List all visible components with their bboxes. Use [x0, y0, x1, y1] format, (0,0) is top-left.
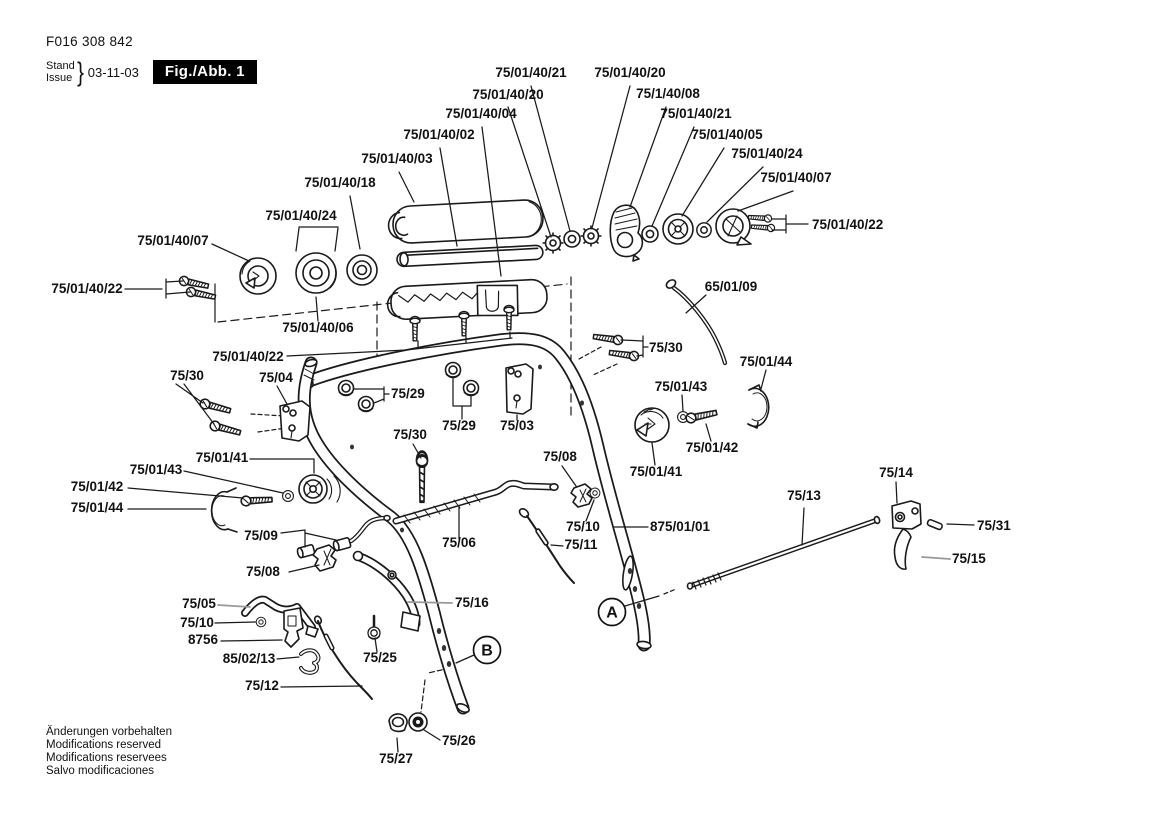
part-label: 75/29	[391, 386, 425, 401]
part-label: 75/10	[566, 519, 600, 534]
part-label: 75/01/44	[71, 500, 124, 515]
part-label: 75/01/42	[686, 440, 739, 455]
exploded-parts-drawing: 75/01/40/2175/01/40/2075/01/40/2075/1/40…	[0, 0, 1168, 825]
part-label: 75/01/40/07	[760, 170, 831, 185]
part-label: 75/01/44	[740, 354, 793, 369]
clutch-right	[635, 408, 669, 442]
part-label: 75/01/40/20	[472, 87, 543, 102]
bracket-75-03	[506, 364, 533, 414]
part-label: 75/05	[182, 596, 216, 611]
part-label: 75/15	[952, 551, 986, 566]
part-label: 75/09	[244, 528, 278, 543]
roller-drum	[296, 253, 336, 293]
part-label: 75/01/43	[130, 462, 183, 477]
part-label: 75/01/40/22	[212, 349, 283, 364]
shield-left	[212, 488, 237, 532]
clip-75-08	[571, 484, 592, 507]
part-labels: 75/01/40/2175/01/40/2075/01/40/2075/1/40…	[51, 65, 1011, 766]
part-label: 75/06	[442, 535, 476, 550]
part-label: 75/01/40/20	[594, 65, 665, 80]
part-label: 75/01/41	[196, 450, 249, 465]
parts-diagram-page: F016 308 842 Stand Issue } 03-11-03 Fig.…	[0, 0, 1168, 825]
part-label: 75/08	[543, 449, 577, 464]
part-label: 75/11	[564, 537, 598, 552]
trigger-handle	[892, 501, 921, 569]
part-label: 75/01/40/21	[495, 65, 567, 80]
end-cap-left	[240, 258, 276, 294]
part-label: 75/01/40/22	[51, 281, 122, 296]
shield-right	[748, 385, 769, 428]
part-label: 75/01/40/02	[403, 127, 474, 142]
part-label: 75/1/40/08	[636, 86, 700, 101]
pulley-left	[299, 475, 340, 503]
view-marker-letter: A	[606, 605, 618, 622]
part-label: 75/26	[442, 733, 476, 748]
part-label: 75/08	[246, 564, 280, 579]
part-label: 75/13	[787, 488, 821, 503]
bracket-75-04	[280, 401, 310, 441]
part-label: 75/03	[500, 418, 534, 433]
part-label: 75/29	[442, 418, 476, 433]
part-label: 75/27	[379, 751, 413, 766]
part-label: 75/01/40/18	[304, 175, 376, 190]
part-label: 75/01/42	[71, 479, 124, 494]
part-label: 75/12	[245, 678, 279, 693]
construction-lines	[215, 277, 617, 712]
view-marker-A: A	[599, 599, 626, 626]
part-label: 75/01/41	[630, 464, 683, 479]
part-label: 75/30	[170, 368, 204, 383]
part-label: 8756	[188, 632, 219, 647]
roller-blade-bar	[397, 245, 544, 267]
ratchet-pawl	[610, 205, 642, 261]
end-cap-right	[716, 209, 751, 245]
note-line: Änderungen vorbehalten	[46, 726, 172, 739]
part-label: 85/02/13	[223, 651, 276, 666]
pin-75-31	[927, 519, 943, 530]
lever-75-05	[245, 600, 318, 637]
bracket-8756	[284, 608, 303, 647]
clip-85-02-13	[301, 650, 318, 673]
part-label: 75/01/40/04	[445, 106, 517, 121]
part-label: 75/31	[977, 518, 1011, 533]
view-marker-B: B	[474, 637, 501, 664]
pulley-drum	[663, 214, 693, 244]
nut-75-27	[389, 714, 407, 731]
part-label: 75/01/40/06	[282, 320, 354, 335]
part-label: 75/01/40/21	[660, 106, 732, 121]
part-label: 75/25	[363, 650, 397, 665]
part-label: 75/14	[879, 465, 913, 480]
note-line: Modifications reservees	[46, 752, 172, 765]
part-label: 75/01/40/05	[691, 127, 763, 142]
part-label: 75/01/40/07	[137, 233, 208, 248]
strap-75-16	[354, 552, 421, 632]
bearing-drum	[347, 255, 377, 285]
link-rod	[688, 516, 881, 589]
modifications-note: Änderungen vorbehalten Modifications res…	[46, 726, 172, 778]
part-label: 75/04	[259, 370, 293, 385]
part-label: 75/30	[393, 427, 427, 442]
part-label: 75/10	[180, 615, 214, 630]
part-label: 75/01/40/03	[361, 151, 433, 166]
washer-75-26	[409, 713, 427, 731]
view-markers: AB	[474, 599, 626, 664]
part-label: 75/16	[455, 595, 489, 610]
part-label: 875/01/01	[650, 519, 711, 534]
part-label: 75/01/40/24	[731, 146, 803, 161]
part-label: 75/01/40/24	[265, 208, 337, 223]
note-line: Salvo modificaciones	[46, 765, 172, 778]
part-label: 75/30	[649, 340, 683, 355]
roller-upper-shell	[388, 199, 544, 244]
part-label: 75/01/43	[655, 379, 708, 394]
part-label: 65/01/09	[705, 279, 758, 294]
view-marker-letter: B	[481, 643, 493, 660]
note-line: Modifications reserved	[46, 739, 172, 752]
part-label: 75/01/40/22	[812, 217, 883, 232]
